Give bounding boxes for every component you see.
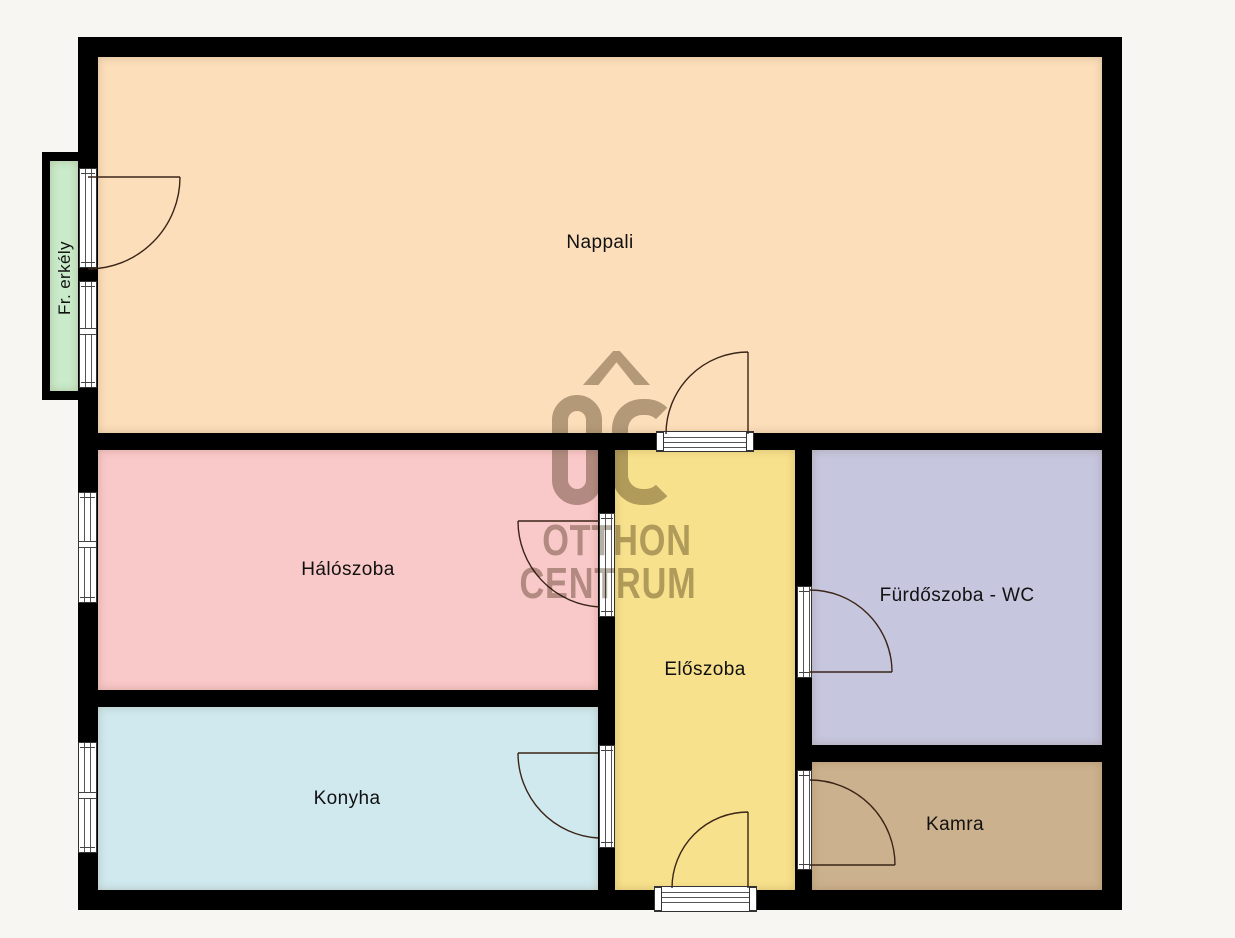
room-label-eloszoba: Előszoba (664, 659, 745, 681)
room-label-nappali: Nappali (566, 232, 633, 254)
konyha-door-swing (518, 753, 598, 838)
door-swings (0, 0, 1235, 938)
balcony-door-swing (88, 177, 180, 269)
room-label-haloszoba: Hálószoba (301, 559, 394, 581)
floor-plan: Nappali Hálószoba Konyha Előszoba Fürdős… (0, 0, 1235, 938)
room-label-furdoszoba: Fürdőszoba - WC (880, 585, 1035, 607)
haloszoba-door-swing (518, 521, 600, 607)
room-label-balcony: Fr. erkély (55, 241, 75, 315)
room-label-konyha: Konyha (314, 788, 381, 810)
entry-door-swing (672, 812, 748, 888)
nappali-door-swing (666, 352, 748, 434)
kamra-door-swing (810, 780, 895, 865)
room-label-kamra: Kamra (926, 814, 984, 836)
